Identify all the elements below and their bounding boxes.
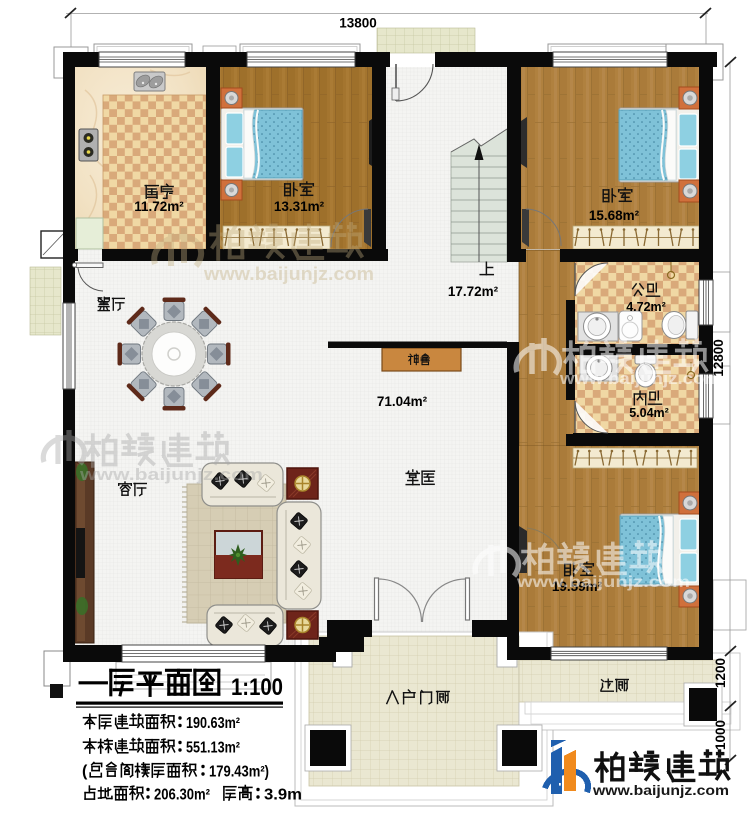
svg-text:5.04m²: 5.04m² xyxy=(629,406,669,420)
svg-text:www.baijunjz.com: www.baijunjz.com xyxy=(592,783,729,798)
svg-text:www.baijunjz.com: www.baijunjz.com xyxy=(79,465,263,484)
svg-text:206.30m²: 206.30m² xyxy=(154,787,210,804)
svg-text:4.72m²: 4.72m² xyxy=(626,300,666,314)
svg-text:71.04m²: 71.04m² xyxy=(377,394,428,409)
svg-text:1:100: 1:100 xyxy=(231,674,283,701)
svg-text:1200: 1200 xyxy=(713,658,728,688)
svg-text:www.baijunjz.com: www.baijunjz.com xyxy=(559,369,721,388)
svg-text:(: ( xyxy=(82,763,88,780)
svg-text:3.9m: 3.9m xyxy=(264,787,302,804)
svg-text:179.43m²): 179.43m²) xyxy=(209,764,269,781)
svg-text:190.63m²: 190.63m² xyxy=(186,715,240,732)
svg-text:13800: 13800 xyxy=(339,16,377,31)
svg-text:13.31m²: 13.31m² xyxy=(274,199,325,214)
svg-text:15.68m²: 15.68m² xyxy=(589,208,640,223)
svg-text:11.72m²: 11.72m² xyxy=(134,199,184,214)
svg-text:17.72m²: 17.72m² xyxy=(448,284,499,299)
svg-text:551.13m²: 551.13m² xyxy=(186,740,240,757)
svg-text:www.baijunjz.com: www.baijunjz.com xyxy=(203,264,374,284)
svg-text:www.baijunjz.com: www.baijunjz.com xyxy=(516,574,690,591)
svg-text:1000: 1000 xyxy=(713,720,728,750)
